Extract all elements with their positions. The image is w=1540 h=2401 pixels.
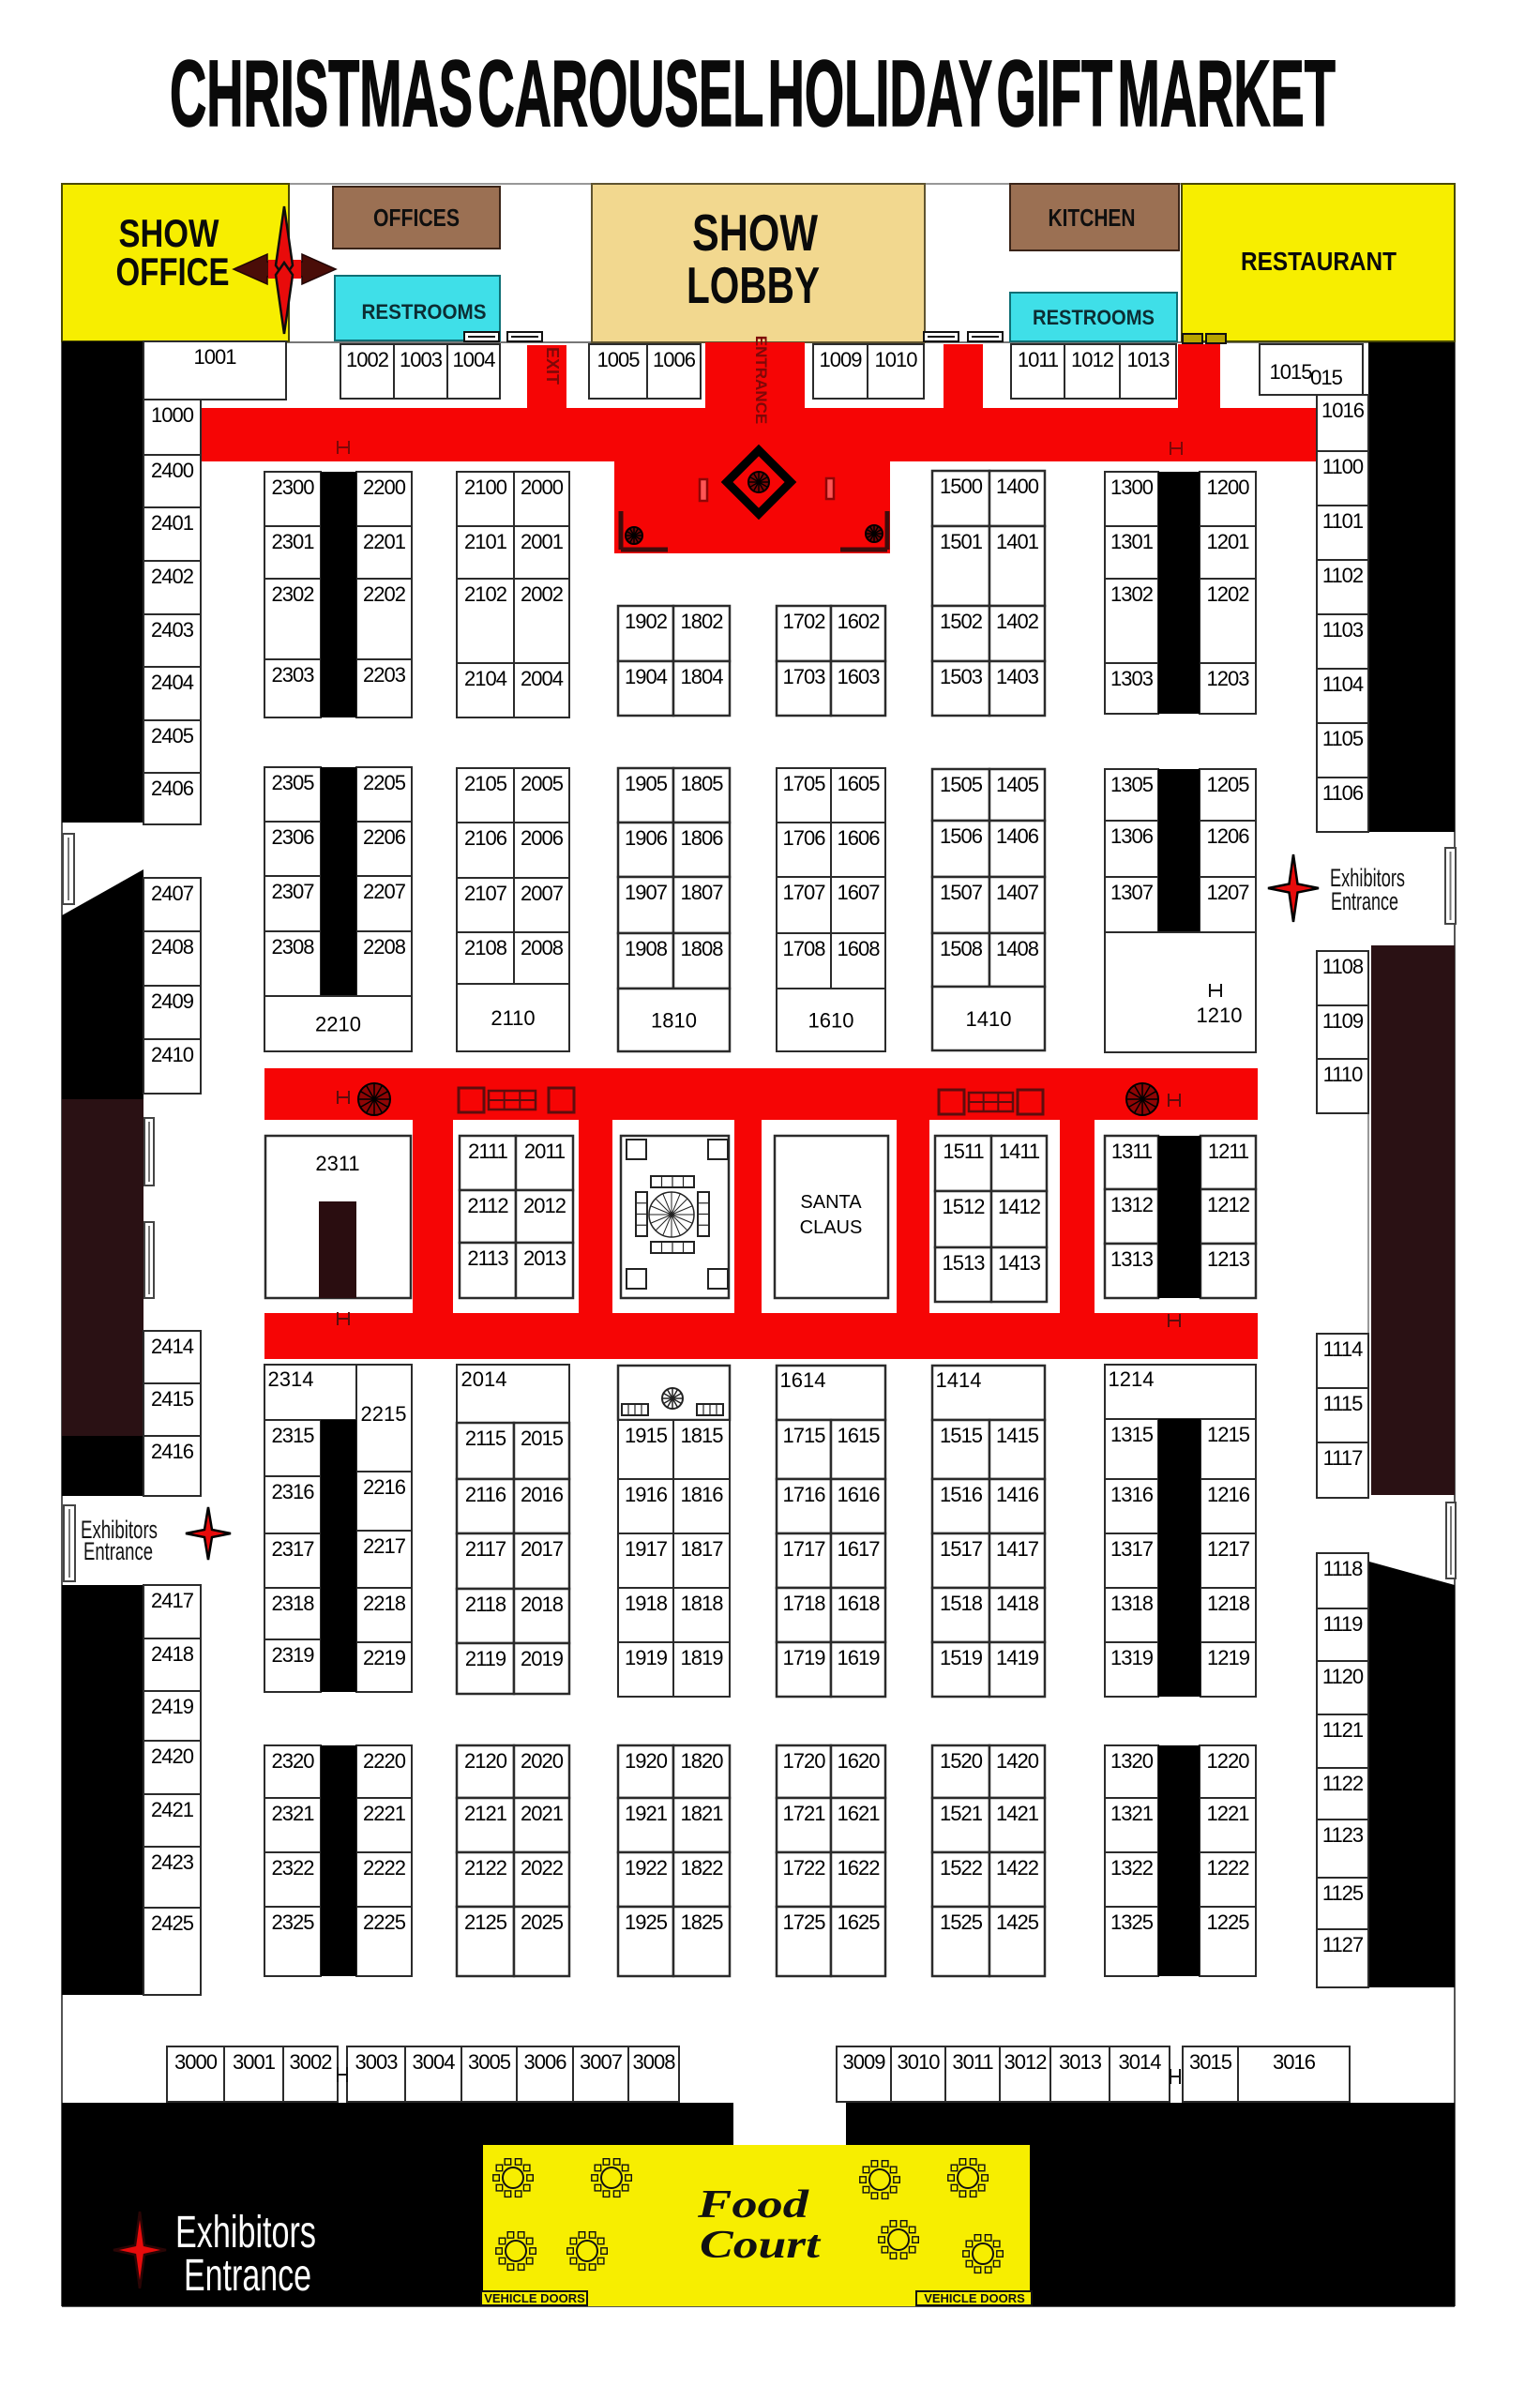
svg-text:1106: 1106 [1322, 781, 1364, 805]
svg-text:2219: 2219 [363, 1646, 406, 1669]
svg-text:1215: 1215 [1207, 1423, 1250, 1446]
svg-text:1807: 1807 [681, 881, 724, 904]
svg-text:1306: 1306 [1110, 824, 1154, 848]
svg-text:1100: 1100 [1322, 455, 1364, 478]
svg-text:2116: 2116 [465, 1483, 506, 1506]
svg-text:2321: 2321 [272, 1802, 315, 1825]
svg-text:3006: 3006 [524, 2050, 567, 2074]
svg-text:2011: 2011 [524, 1140, 566, 1163]
svg-text:1502: 1502 [940, 610, 983, 633]
svg-text:1506: 1506 [940, 824, 983, 848]
svg-text:CHRISTMAS CAROUSEL HOLIDAY GIF: CHRISTMAS CAROUSEL HOLIDAY GIFT MARKET [170, 41, 1336, 146]
svg-text:SANTA: SANTA [800, 1192, 862, 1213]
svg-text:2403: 2403 [151, 618, 194, 642]
svg-text:3005: 3005 [468, 2050, 511, 2074]
svg-text:2108: 2108 [464, 936, 507, 959]
svg-text:1607: 1607 [838, 881, 881, 904]
svg-text:1725: 1725 [783, 1910, 826, 1934]
svg-text:2423: 2423 [151, 1850, 194, 1874]
svg-text:2111: 2111 [468, 1140, 507, 1163]
svg-text:SHOW: SHOW [119, 211, 219, 255]
svg-text:1118: 1118 [1323, 1557, 1363, 1580]
svg-text:1221: 1221 [1207, 1802, 1250, 1825]
svg-text:1211: 1211 [1208, 1140, 1249, 1163]
svg-text:1301: 1301 [1110, 530, 1154, 553]
svg-text:1216: 1216 [1207, 1483, 1250, 1506]
svg-text:2300: 2300 [272, 476, 315, 499]
svg-text:3008: 3008 [633, 2050, 676, 2074]
svg-text:3003: 3003 [355, 2050, 399, 2074]
svg-text:2320: 2320 [272, 1749, 315, 1773]
svg-text:1618: 1618 [838, 1592, 881, 1615]
svg-text:2205: 2205 [363, 771, 406, 794]
svg-text:1717: 1717 [783, 1537, 826, 1561]
svg-text:2306: 2306 [272, 825, 315, 849]
svg-text:2118: 2118 [465, 1593, 506, 1616]
svg-text:OFFICE: OFFICE [116, 249, 230, 294]
svg-text:1200: 1200 [1207, 476, 1250, 499]
svg-text:2004: 2004 [521, 667, 564, 690]
svg-text:1110: 1110 [1323, 1063, 1363, 1086]
svg-text:1515: 1515 [940, 1424, 983, 1447]
svg-text:3013: 3013 [1059, 2050, 1102, 2074]
svg-text:2016: 2016 [521, 1483, 564, 1506]
svg-text:1003: 1003 [400, 348, 443, 371]
svg-text:1519: 1519 [940, 1646, 983, 1669]
svg-text:1405: 1405 [996, 773, 1039, 796]
svg-text:2001: 2001 [521, 530, 564, 553]
svg-text:1802: 1802 [681, 610, 724, 633]
svg-text:2408: 2408 [151, 935, 194, 959]
svg-text:2420: 2420 [151, 1744, 194, 1768]
svg-text:1416: 1416 [996, 1483, 1039, 1506]
svg-text:3001: 3001 [233, 2050, 276, 2074]
svg-text:1722: 1722 [783, 1856, 826, 1880]
svg-text:1619: 1619 [838, 1646, 881, 1669]
svg-text:1512: 1512 [943, 1195, 986, 1218]
svg-text:1716: 1716 [783, 1483, 826, 1506]
svg-text:3012: 3012 [1004, 2050, 1048, 2074]
svg-text:1122: 1122 [1322, 1772, 1364, 1795]
svg-text:1508: 1508 [940, 937, 983, 960]
svg-text:1125: 1125 [1322, 1881, 1364, 1905]
svg-text:1805: 1805 [681, 772, 724, 795]
svg-text:2015: 2015 [521, 1427, 564, 1450]
svg-text:2100: 2100 [464, 476, 507, 499]
svg-text:1818: 1818 [681, 1592, 724, 1615]
svg-text:1719: 1719 [783, 1646, 826, 1669]
svg-text:1606: 1606 [838, 826, 881, 850]
svg-text:1212: 1212 [1207, 1193, 1250, 1216]
svg-text:1222: 1222 [1207, 1856, 1250, 1880]
svg-text:1115: 1115 [1323, 1392, 1363, 1415]
svg-text:1806: 1806 [681, 826, 724, 850]
svg-text:Entrance: Entrance [83, 1537, 153, 1565]
svg-text:2006: 2006 [521, 826, 564, 850]
svg-text:2210: 2210 [315, 1013, 361, 1036]
svg-text:2318: 2318 [272, 1592, 315, 1615]
svg-text:1401: 1401 [996, 530, 1039, 553]
svg-text:2025: 2025 [521, 1910, 564, 1934]
svg-text:1522: 1522 [940, 1856, 983, 1880]
svg-text:2119: 2119 [465, 1647, 506, 1670]
svg-text:3016: 3016 [1273, 2050, 1316, 2074]
svg-text:2022: 2022 [521, 1856, 564, 1880]
svg-text:1905: 1905 [625, 772, 668, 795]
svg-text:1621: 1621 [838, 1802, 881, 1825]
svg-text:1202: 1202 [1207, 582, 1250, 606]
svg-text:1517: 1517 [940, 1537, 983, 1561]
svg-text:2419: 2419 [151, 1695, 194, 1718]
svg-text:2317: 2317 [272, 1537, 315, 1561]
svg-text:1614: 1614 [780, 1368, 826, 1392]
svg-text:1319: 1319 [1110, 1646, 1154, 1669]
svg-text:3007: 3007 [580, 2050, 623, 2074]
svg-text:2106: 2106 [464, 826, 507, 850]
svg-text:2020: 2020 [521, 1749, 564, 1773]
svg-text:Food: Food [697, 2183, 810, 2227]
svg-text:1210: 1210 [1197, 1004, 1243, 1027]
svg-text:KITCHEN: KITCHEN [1049, 204, 1136, 232]
svg-text:2308: 2308 [272, 935, 315, 959]
svg-text:1318: 1318 [1110, 1592, 1154, 1615]
svg-text:2401: 2401 [151, 511, 194, 535]
svg-text:2202: 2202 [363, 582, 406, 606]
svg-text:1616: 1616 [838, 1483, 881, 1506]
svg-text:1121: 1121 [1322, 1718, 1364, 1742]
svg-text:1422: 1422 [996, 1856, 1039, 1880]
svg-text:2206: 2206 [363, 825, 406, 849]
svg-text:1320: 1320 [1110, 1749, 1154, 1773]
svg-text:1013: 1013 [1127, 348, 1170, 371]
svg-text:1010: 1010 [875, 348, 918, 371]
svg-text:Court: Court [700, 2224, 822, 2267]
svg-text:1720: 1720 [783, 1749, 826, 1773]
svg-text:2121: 2121 [464, 1802, 507, 1825]
svg-text:1615: 1615 [838, 1424, 881, 1447]
svg-text:3002: 3002 [290, 2050, 333, 2074]
svg-text:1311: 1311 [1111, 1140, 1153, 1163]
svg-text:2319: 2319 [272, 1643, 315, 1667]
svg-text:1525: 1525 [940, 1910, 983, 1934]
svg-text:2307: 2307 [272, 880, 315, 903]
svg-text:RESTROOMS: RESTROOMS [362, 300, 487, 324]
svg-text:2301: 2301 [272, 530, 315, 553]
svg-text:2007: 2007 [521, 882, 564, 905]
svg-text:2208: 2208 [363, 935, 406, 959]
svg-text:1109: 1109 [1322, 1009, 1364, 1033]
svg-text:1419: 1419 [996, 1646, 1039, 1669]
svg-text:1005: 1005 [597, 348, 641, 371]
svg-text:1511: 1511 [943, 1140, 984, 1163]
svg-text:2013: 2013 [523, 1246, 566, 1270]
svg-text:2117: 2117 [465, 1537, 506, 1561]
svg-text:1919: 1919 [625, 1646, 668, 1669]
svg-text:1001: 1001 [194, 345, 237, 369]
svg-text:1002: 1002 [346, 348, 389, 371]
svg-text:1625: 1625 [838, 1910, 881, 1934]
svg-text:VEHICLE DOORS: VEHICLE DOORS [484, 2291, 585, 2305]
svg-text:1412: 1412 [998, 1195, 1041, 1218]
svg-text:OFFICES: OFFICES [373, 204, 460, 232]
svg-text:1922: 1922 [625, 1856, 668, 1880]
svg-text:LOBBY: LOBBY [687, 256, 820, 314]
svg-text:1918: 1918 [625, 1592, 668, 1615]
svg-text:1120: 1120 [1322, 1665, 1364, 1688]
svg-text:2207: 2207 [363, 880, 406, 903]
svg-text:2311: 2311 [315, 1152, 359, 1175]
svg-text:2404: 2404 [151, 671, 194, 694]
svg-text:3004: 3004 [413, 2050, 456, 2074]
svg-text:1907: 1907 [625, 881, 668, 904]
svg-text:3011: 3011 [952, 2050, 993, 2074]
svg-text:2421: 2421 [151, 1798, 194, 1821]
svg-text:3009: 3009 [843, 2050, 886, 2074]
svg-text:1718: 1718 [783, 1592, 826, 1615]
svg-text:015: 015 [1310, 366, 1342, 389]
svg-text:1400: 1400 [996, 475, 1039, 498]
svg-text:2125: 2125 [464, 1910, 507, 1934]
svg-text:2017: 2017 [521, 1537, 564, 1561]
svg-text:1411: 1411 [999, 1140, 1040, 1163]
svg-text:2101: 2101 [464, 530, 507, 553]
svg-text:2415: 2415 [151, 1387, 194, 1411]
svg-text:1103: 1103 [1322, 618, 1364, 642]
svg-text:2200: 2200 [363, 476, 406, 499]
svg-text:3015: 3015 [1189, 2050, 1232, 2074]
svg-text:1521: 1521 [940, 1802, 983, 1825]
svg-text:1917: 1917 [625, 1537, 668, 1561]
svg-text:2414: 2414 [151, 1335, 194, 1358]
svg-text:1214: 1214 [1109, 1367, 1155, 1391]
svg-text:1721: 1721 [783, 1802, 826, 1825]
svg-text:2417: 2417 [151, 1589, 194, 1612]
svg-text:2216: 2216 [363, 1475, 406, 1499]
svg-text:1908: 1908 [625, 937, 668, 960]
svg-text:SHOW: SHOW [692, 204, 818, 262]
svg-text:1808: 1808 [681, 937, 724, 960]
svg-text:2000: 2000 [521, 476, 564, 499]
svg-text:2012: 2012 [523, 1194, 566, 1217]
svg-text:2021: 2021 [521, 1802, 564, 1825]
svg-text:2221: 2221 [363, 1802, 406, 1825]
svg-text:2104: 2104 [464, 667, 507, 690]
svg-text:1603: 1603 [838, 665, 881, 688]
svg-text:1225: 1225 [1207, 1910, 1250, 1934]
svg-text:1108: 1108 [1322, 955, 1364, 978]
svg-text:2115: 2115 [465, 1427, 506, 1450]
svg-text:1617: 1617 [838, 1537, 881, 1561]
svg-text:1305: 1305 [1110, 773, 1154, 796]
svg-text:1425: 1425 [996, 1910, 1039, 1934]
svg-text:1501: 1501 [940, 530, 983, 553]
svg-text:2120: 2120 [464, 1749, 507, 1773]
svg-text:1119: 1119 [1323, 1612, 1363, 1636]
svg-text:2014: 2014 [461, 1367, 507, 1391]
svg-text:1702: 1702 [783, 610, 826, 633]
svg-text:1518: 1518 [940, 1592, 983, 1615]
svg-text:1101: 1101 [1322, 509, 1364, 533]
svg-text:1015: 1015 [1270, 360, 1313, 384]
svg-text:2416: 2416 [151, 1440, 194, 1463]
svg-text:2201: 2201 [363, 530, 406, 553]
svg-text:1605: 1605 [838, 772, 881, 795]
svg-text:RESTAURANT: RESTAURANT [1241, 247, 1397, 276]
svg-text:1206: 1206 [1207, 824, 1250, 848]
svg-text:2418: 2418 [151, 1642, 194, 1666]
svg-text:1000: 1000 [151, 403, 194, 427]
svg-text:1402: 1402 [996, 610, 1039, 633]
svg-text:2303: 2303 [272, 663, 315, 687]
svg-text:3000: 3000 [174, 2050, 218, 2074]
svg-text:1417: 1417 [996, 1537, 1039, 1561]
svg-text:1620: 1620 [838, 1749, 881, 1773]
svg-text:1408: 1408 [996, 937, 1039, 960]
svg-text:1507: 1507 [940, 881, 983, 904]
svg-text:2325: 2325 [272, 1910, 315, 1934]
svg-text:1904: 1904 [625, 665, 668, 688]
svg-text:Entrance: Entrance [1331, 887, 1398, 915]
svg-text:1819: 1819 [681, 1646, 724, 1669]
svg-text:1705: 1705 [783, 772, 826, 795]
svg-text:1415: 1415 [996, 1424, 1039, 1447]
svg-text:1505: 1505 [940, 773, 983, 796]
svg-text:2112: 2112 [467, 1194, 508, 1217]
svg-text:2222: 2222 [363, 1856, 406, 1880]
svg-text:VEHICLE DOORS: VEHICLE DOORS [924, 2291, 1025, 2305]
svg-text:1322: 1322 [1110, 1856, 1154, 1880]
svg-text:1016: 1016 [1321, 399, 1365, 422]
svg-text:2215: 2215 [361, 1402, 407, 1426]
svg-text:2406: 2406 [151, 777, 194, 800]
svg-text:2220: 2220 [363, 1749, 406, 1773]
svg-text:1207: 1207 [1207, 881, 1250, 904]
svg-text:1921: 1921 [625, 1802, 668, 1825]
svg-text:1407: 1407 [996, 881, 1039, 904]
svg-text:1413: 1413 [998, 1251, 1041, 1275]
svg-text:1706: 1706 [783, 826, 826, 850]
svg-text:2105: 2105 [464, 772, 507, 795]
svg-text:1920: 1920 [625, 1749, 668, 1773]
svg-text:Entrance: Entrance [184, 2251, 311, 2301]
svg-text:3010: 3010 [898, 2050, 941, 2074]
svg-text:2113: 2113 [467, 1246, 508, 1270]
svg-text:1902: 1902 [625, 610, 668, 633]
svg-text:1104: 1104 [1322, 672, 1364, 696]
svg-text:1622: 1622 [838, 1856, 881, 1880]
svg-text:2425: 2425 [151, 1911, 194, 1935]
svg-text:1302: 1302 [1110, 582, 1154, 606]
svg-text:2322: 2322 [272, 1856, 315, 1880]
svg-text:1825: 1825 [681, 1910, 724, 1934]
svg-text:1815: 1815 [681, 1424, 724, 1447]
svg-text:1218: 1218 [1207, 1592, 1250, 1615]
svg-text:1205: 1205 [1207, 773, 1250, 796]
svg-text:1403: 1403 [996, 665, 1039, 688]
svg-text:2402: 2402 [151, 565, 194, 588]
svg-text:2005: 2005 [521, 772, 564, 795]
svg-text:1513: 1513 [943, 1251, 986, 1275]
svg-text:1804: 1804 [681, 665, 724, 688]
svg-text:2410: 2410 [151, 1043, 194, 1066]
svg-text:1916: 1916 [625, 1483, 668, 1506]
svg-text:1820: 1820 [681, 1749, 724, 1773]
svg-text:1503: 1503 [940, 665, 983, 688]
svg-text:1313: 1313 [1110, 1247, 1154, 1271]
svg-text:CLAUS: CLAUS [800, 1217, 863, 1238]
svg-text:1203: 1203 [1207, 667, 1250, 690]
svg-text:2305: 2305 [272, 771, 315, 794]
svg-text:2302: 2302 [272, 582, 315, 606]
svg-text:1707: 1707 [783, 881, 826, 904]
svg-text:1715: 1715 [783, 1424, 826, 1447]
svg-text:2316: 2316 [272, 1480, 315, 1503]
svg-text:1006: 1006 [653, 348, 696, 371]
svg-text:1114: 1114 [1323, 1337, 1363, 1361]
svg-text:3014: 3014 [1119, 2050, 1162, 2074]
svg-text:1925: 1925 [625, 1910, 668, 1934]
svg-text:1117: 1117 [1323, 1446, 1363, 1470]
svg-text:1123: 1123 [1322, 1823, 1364, 1847]
svg-text:1317: 1317 [1110, 1537, 1154, 1561]
svg-text:1816: 1816 [681, 1483, 724, 1506]
svg-text:1602: 1602 [838, 610, 881, 633]
svg-text:2018: 2018 [521, 1593, 564, 1616]
svg-text:1703: 1703 [783, 665, 826, 688]
svg-text:1520: 1520 [940, 1749, 983, 1773]
svg-text:1410: 1410 [966, 1007, 1012, 1031]
svg-text:1500: 1500 [940, 475, 983, 498]
svg-text:1321: 1321 [1110, 1802, 1154, 1825]
svg-text:2314: 2314 [268, 1367, 314, 1391]
svg-text:1906: 1906 [625, 826, 668, 850]
svg-text:2405: 2405 [151, 724, 194, 747]
svg-text:1915: 1915 [625, 1424, 668, 1447]
svg-text:2203: 2203 [363, 663, 406, 687]
svg-text:1312: 1312 [1110, 1193, 1154, 1216]
svg-text:1012: 1012 [1071, 348, 1114, 371]
svg-text:2400: 2400 [151, 459, 194, 482]
svg-text:1217: 1217 [1207, 1537, 1250, 1561]
svg-text:2107: 2107 [464, 882, 507, 905]
svg-text:RESTROOMS: RESTROOMS [1033, 306, 1155, 329]
svg-text:2217: 2217 [363, 1534, 406, 1558]
svg-text:1213: 1213 [1207, 1247, 1250, 1271]
svg-text:1009: 1009 [820, 348, 863, 371]
svg-text:1817: 1817 [681, 1537, 724, 1561]
svg-text:2122: 2122 [464, 1856, 507, 1880]
svg-text:EXIT: EXIT [543, 347, 562, 385]
svg-text:1414: 1414 [936, 1368, 982, 1392]
svg-text:1810: 1810 [651, 1009, 697, 1033]
svg-text:2218: 2218 [363, 1592, 406, 1615]
svg-text:1610: 1610 [808, 1009, 854, 1033]
svg-text:1420: 1420 [996, 1749, 1039, 1773]
svg-text:1421: 1421 [996, 1802, 1039, 1825]
svg-text:2225: 2225 [363, 1910, 406, 1934]
svg-text:1516: 1516 [940, 1483, 983, 1506]
svg-text:2110: 2110 [491, 1006, 535, 1030]
svg-text:2409: 2409 [151, 989, 194, 1013]
svg-text:2002: 2002 [521, 582, 564, 606]
svg-text:1608: 1608 [838, 937, 881, 960]
svg-text:1011: 1011 [1018, 348, 1059, 371]
svg-text:2102: 2102 [464, 582, 507, 606]
svg-text:2407: 2407 [151, 882, 194, 905]
svg-text:1300: 1300 [1110, 476, 1154, 499]
svg-text:1822: 1822 [681, 1856, 724, 1880]
svg-text:1316: 1316 [1110, 1483, 1154, 1506]
